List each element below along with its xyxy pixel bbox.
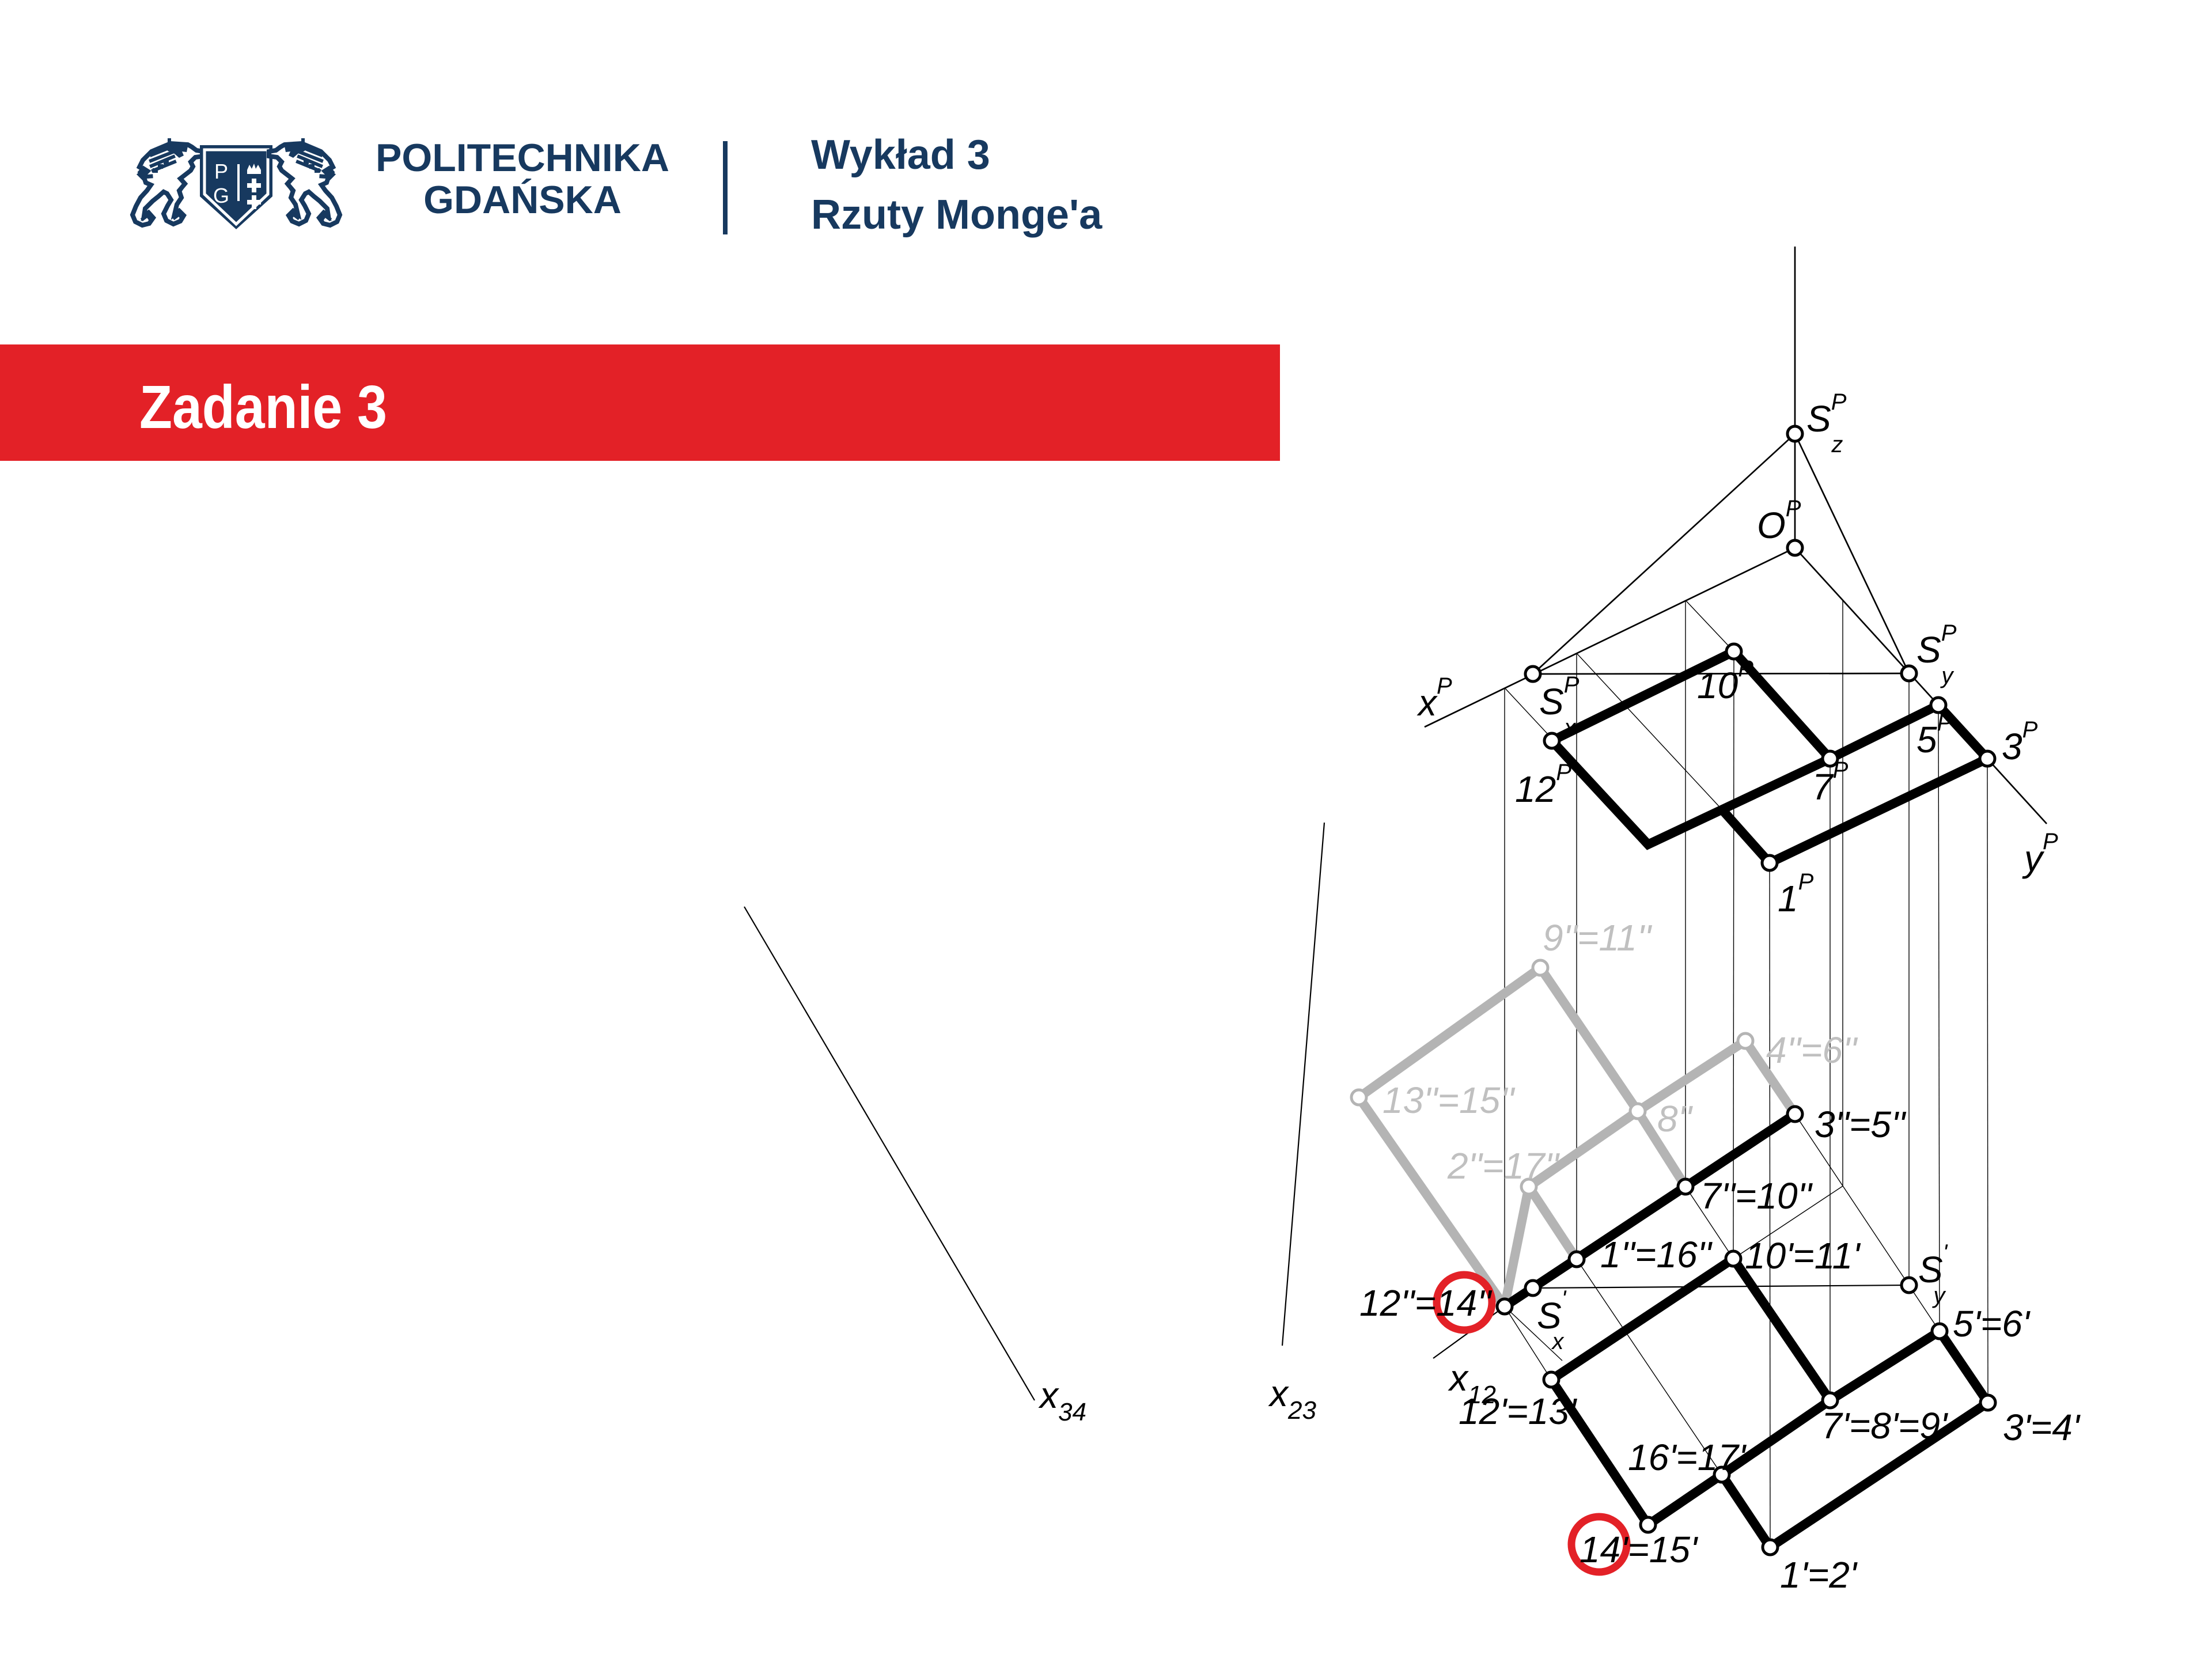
svg-text:P: P [214,160,228,183]
svg-text:16'=17': 16'=17' [1628,1437,1747,1478]
svg-text:8'': 8'' [1657,1098,1694,1139]
svg-text:POLITECHNIKA: POLITECHNIKA [376,136,669,180]
svg-text:7''=10'': 7''=10'' [1700,1175,1813,1217]
svg-text:2''=17'': 2''=17'' [1447,1145,1560,1187]
svg-text:1'=2': 1'=2' [1780,1554,1858,1596]
svg-text:10'=11': 10'=11' [1745,1235,1861,1277]
svg-text:12''=14'': 12''=14'' [1359,1282,1493,1324]
svg-text:3''=5'': 3''=5'' [1815,1104,1907,1145]
svg-text:4''=6'': 4''=6'' [1766,1029,1858,1071]
svg-text:9''=11'': 9''=11'' [1543,917,1653,959]
svg-text:Wykład 3: Wykład 3 [811,132,990,178]
svg-text:GDAŃSKA: GDAŃSKA [423,178,622,222]
svg-text:3'=4': 3'=4' [2003,1407,2081,1448]
svg-text:14'=15': 14'=15' [1580,1529,1699,1570]
svg-text:Rzuty Monge'a: Rzuty Monge'a [811,192,1103,238]
svg-text:5'=6': 5'=6' [1953,1303,2031,1344]
svg-text:Zadanie 3: Zadanie 3 [139,373,387,441]
svg-text:1''=16'': 1''=16'' [1600,1234,1713,1275]
svg-text:G: G [213,184,229,207]
svg-text:13''=15'': 13''=15'' [1382,1080,1516,1121]
svg-text:7'=8'=9': 7'=8'=9' [1821,1405,1949,1446]
